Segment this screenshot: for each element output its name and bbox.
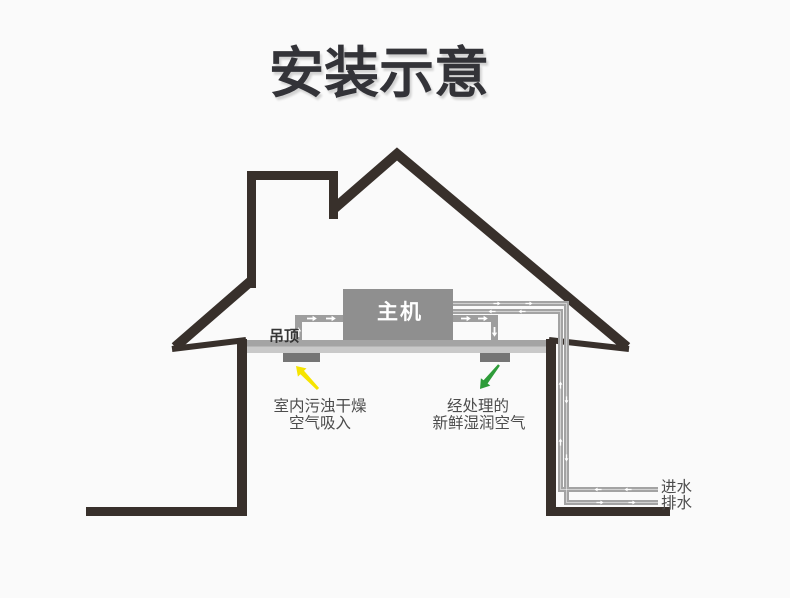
chimney-interior (252, 176, 334, 293)
supply-duct (453, 319, 495, 341)
intake-caption-line1: 室内污浊干燥 (273, 397, 367, 415)
left-wall (237, 339, 247, 516)
main-unit-label: 主机 (377, 300, 423, 324)
fresh-air-caption-line1: 经处理的 (447, 397, 509, 415)
intake-duct (299, 319, 344, 341)
intake-caption-line2: 空气吸入 (289, 414, 351, 432)
intake-vent (283, 353, 320, 362)
ceiling-label: 吊顶 (269, 327, 299, 345)
ceiling-panel-bottom (247, 347, 546, 354)
right-ground (546, 507, 670, 516)
left-ground (86, 507, 247, 516)
right-wall (546, 339, 556, 516)
fresh-air-arrow-icon (480, 364, 500, 389)
fresh-air-caption-line2: 新鲜湿润空气 (432, 414, 525, 432)
intake-arrow-icon (296, 366, 319, 390)
installation-diagram-page: 安装示意 主机 (0, 0, 790, 598)
supply-vent (480, 353, 510, 362)
drain-label: 排水 (661, 494, 693, 512)
house-installation-diagram: 主机 吊顶 室内污浊干燥 空气吸入 经处理的 新鲜湿润空气 进水 排水 (0, 0, 790, 598)
